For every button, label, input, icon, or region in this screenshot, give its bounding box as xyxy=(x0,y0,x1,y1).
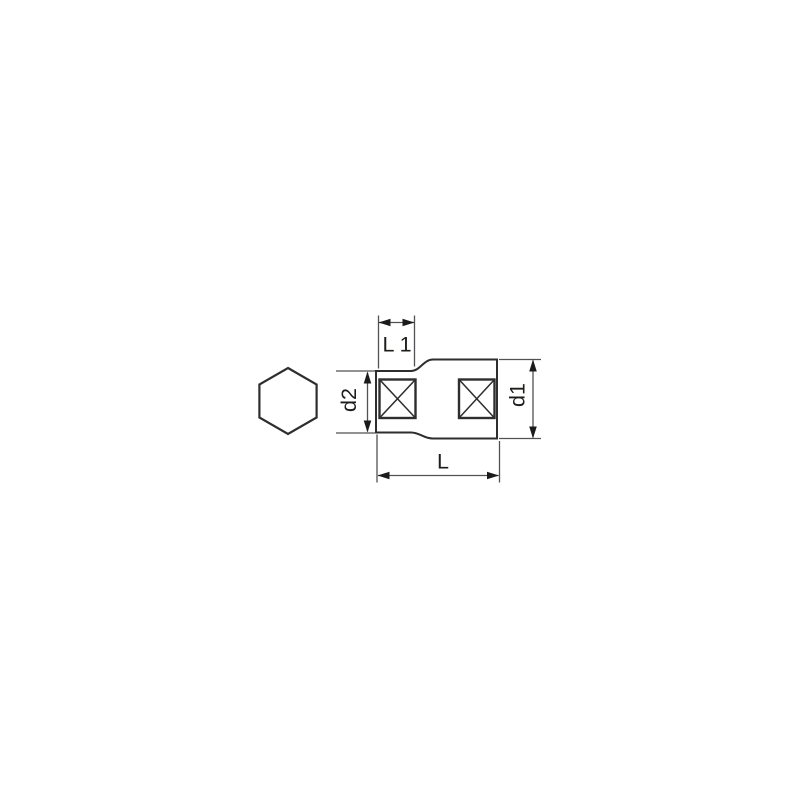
arrowhead-down-icon xyxy=(529,427,537,439)
arrowhead-right-icon xyxy=(403,319,415,327)
dimension-l: L xyxy=(377,435,500,483)
socket-body xyxy=(376,360,497,439)
dimension-l1: L 1 xyxy=(379,316,415,369)
hexagon-icon xyxy=(259,368,316,434)
arrowhead-left-icon xyxy=(379,319,391,327)
dimension-d1: d1 xyxy=(499,360,541,439)
arrowhead-up-icon xyxy=(529,360,537,372)
dimension-d2: d2 xyxy=(336,371,375,433)
drive-square-front xyxy=(380,380,416,419)
hexagon-outline xyxy=(259,368,316,434)
drive-square-rear xyxy=(459,380,495,419)
dimension-label-d1: d1 xyxy=(506,383,530,407)
arrowhead-up-icon xyxy=(364,372,372,384)
dimension-label-l: L xyxy=(437,450,449,474)
arrowhead-down-icon xyxy=(364,421,372,433)
dimension-label-d2: d2 xyxy=(337,388,361,412)
dimension-label-l1: L 1 xyxy=(382,333,411,357)
arrowhead-right-icon xyxy=(487,472,499,480)
arrowhead-left-icon xyxy=(378,472,390,480)
socket-dimension-diagram: L 1 d2 d1 L xyxy=(0,0,800,800)
